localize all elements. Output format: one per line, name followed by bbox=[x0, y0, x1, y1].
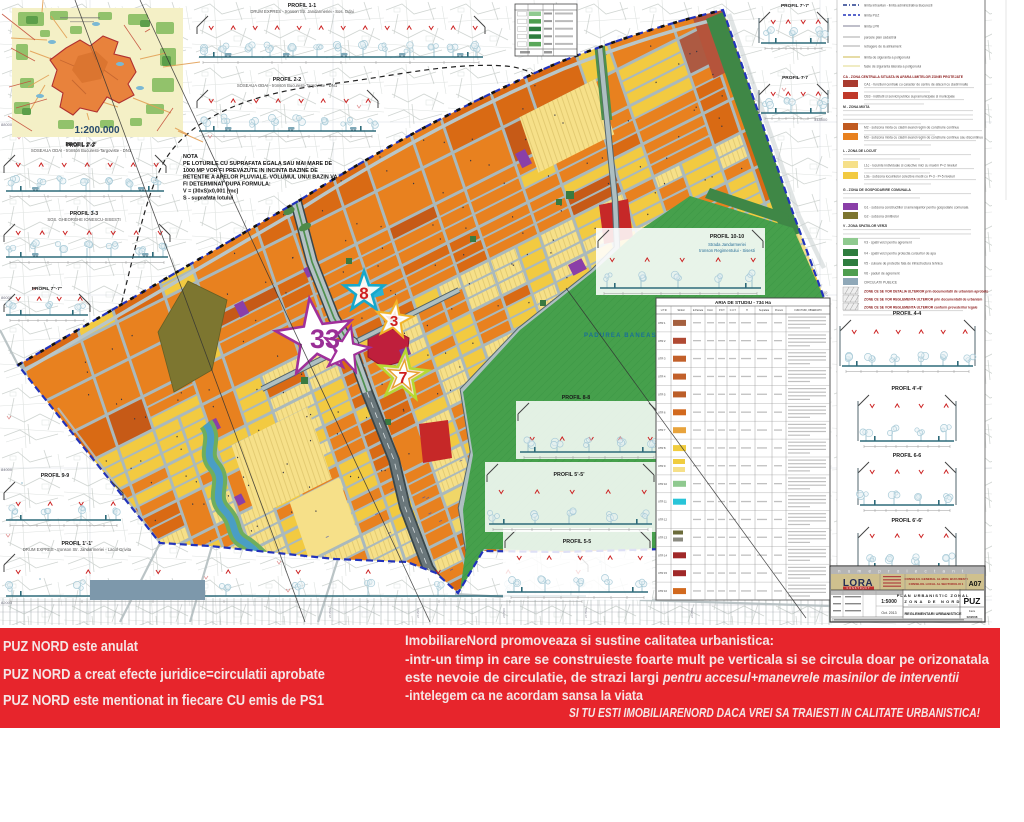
svg-text:PROFIL 7-7: PROFIL 7-7 bbox=[782, 75, 808, 81]
svg-text:PROFIL 2'-2': PROFIL 2'-2' bbox=[66, 143, 95, 149]
svg-text:UTR 4: UTR 4 bbox=[658, 375, 666, 379]
svg-text:limita de siguranta a poligonu: limita de siguranta a poligonului bbox=[864, 56, 910, 60]
svg-text:-intr-un timp in care se const: -intr-un timp in care se construieste fo… bbox=[405, 651, 989, 667]
svg-text:UTR 10: UTR 10 bbox=[658, 482, 667, 486]
svg-text:CIRCULATII PUBLICE: CIRCULATII PUBLICE bbox=[864, 281, 898, 285]
svg-text:M3 - subzona mixta cu cladiri: M3 - subzona mixta cu cladiri avand regi… bbox=[864, 136, 983, 140]
svg-text:PUZ: PUZ bbox=[964, 596, 981, 606]
svg-text:8: 8 bbox=[359, 284, 368, 303]
svg-text:S - suprafata lotului: S - suprafata lotului bbox=[183, 195, 234, 201]
svg-text:M - ZONA MIXTA: M - ZONA MIXTA bbox=[843, 105, 870, 109]
svg-text:fasie de siguranta laterala a: fasie de siguranta laterala a poligonulu… bbox=[864, 65, 921, 69]
svg-text:tronson Regimentului - Sisesti: tronson Regimentului - Sisesti bbox=[699, 248, 755, 253]
svg-text:UTR 7: UTR 7 bbox=[658, 428, 666, 432]
svg-text:PLAN URBANISTIC ZONAL: PLAN URBANISTIC ZONAL bbox=[897, 593, 970, 598]
svg-text:PROFIL 7'-7': PROFIL 7'-7' bbox=[781, 3, 809, 9]
svg-text:retragere de la aliniament: retragere de la aliniament bbox=[864, 45, 901, 49]
svg-text:V5 - culoare de protectie fata: V5 - culoare de protectie fata de infras… bbox=[864, 262, 943, 266]
svg-text:82000: 82000 bbox=[1, 600, 13, 605]
svg-text:PROFIL 9-9: PROFIL 9-9 bbox=[41, 473, 70, 479]
svg-text:G1 - subzona constructiilor si: G1 - subzona constructiilor si amenajari… bbox=[864, 206, 968, 210]
svg-text:PROFIL 8-8: PROFIL 8-8 bbox=[562, 395, 591, 401]
svg-text:Simbol: Simbol bbox=[677, 310, 685, 312]
svg-text:UTR 15: UTR 15 bbox=[658, 571, 667, 575]
svg-text:Procent: Procent bbox=[775, 309, 783, 312]
svg-text:33: 33 bbox=[310, 324, 340, 354]
svg-text:ZONA DE NORD: ZONA DE NORD bbox=[904, 599, 961, 604]
svg-text:NOTA: NOTA bbox=[183, 154, 198, 160]
svg-text:M2 - subzona mixta cu cladiri: M2 - subzona mixta cu cladiri avand regi… bbox=[864, 126, 959, 130]
svg-text:limita PUZ: limita PUZ bbox=[864, 14, 879, 18]
svg-text:V6 - paduri de agrement: V6 - paduri de agrement bbox=[864, 272, 900, 276]
svg-text:PUZ NORD este anulat: PUZ NORD este anulat bbox=[3, 639, 138, 655]
svg-text:V3 - spatii verzi pentru agrem: V3 - spatii verzi pentru agrement bbox=[864, 241, 912, 245]
svg-text:265500: 265500 bbox=[502, 608, 506, 618]
svg-text:UTR 5: UTR 5 bbox=[658, 392, 666, 396]
svg-text:269500: 269500 bbox=[690, 608, 694, 618]
svg-text:-intelegem ca ne acordam sansa: -intelegem ca ne acordam sansa la viata bbox=[405, 687, 643, 703]
svg-text:G - ZONA DE GOSPODARIRE COMUNA: G - ZONA DE GOSPODARIRE COMUNALA bbox=[843, 188, 911, 192]
svg-text:limita LPR: limita LPR bbox=[864, 25, 880, 29]
svg-text:UTR 11: UTR 11 bbox=[658, 500, 667, 504]
svg-text:PROFIL 5-5: PROFIL 5-5 bbox=[563, 539, 592, 545]
svg-text:7: 7 bbox=[399, 370, 408, 387]
svg-text:88000: 88000 bbox=[1, 122, 13, 127]
svg-text:PUZ NORD a creat efecte juridi: PUZ NORD a creat efecte juridice=circula… bbox=[3, 667, 325, 683]
svg-text:ZONE CE SE VOR REGLEMENTA ULTE: ZONE CE SE VOR REGLEMENTA ULTERIOR confo… bbox=[864, 306, 978, 310]
svg-text:Oct. 2013: Oct. 2013 bbox=[881, 611, 896, 615]
svg-text:PROFIL 5'-5': PROFIL 5'-5' bbox=[554, 472, 585, 478]
svg-text:E.Parcela: E.Parcela bbox=[693, 309, 704, 312]
svg-text:UTR 12: UTR 12 bbox=[658, 518, 667, 522]
svg-text:84000: 84000 bbox=[1, 467, 13, 472]
svg-text:PUZ NORD este mentionat in fie: PUZ NORD este mentionat in fiecare CU em… bbox=[3, 693, 324, 709]
svg-text:este nevoie de circulatie, de: este nevoie de circulatie, de strazi lar… bbox=[405, 669, 659, 685]
svg-text:pentru accesul+manevrele masi: pentru accesul+manevrele masinilor de in… bbox=[662, 669, 960, 685]
svg-text:PROFIL 7"-7": PROFIL 7"-7" bbox=[32, 286, 62, 292]
svg-text:ZONE CE SE VOR REGLEMENTA ULTE: ZONE CE SE VOR REGLEMENTA ULTERIOR prin … bbox=[864, 298, 982, 302]
svg-text:UTR 6: UTR 6 bbox=[658, 410, 666, 414]
svg-text:PADUREA BANEASA: PADUREA BANEASA bbox=[584, 333, 662, 339]
svg-text:CA1 - functiuni centrale cu ca: CA1 - functiuni centrale cu caracter de … bbox=[864, 83, 968, 87]
svg-text:V - ZONA SPATIILOR VERZI: V - ZONA SPATIILOR VERZI bbox=[843, 224, 887, 228]
svg-text:RETENTIE A APELOR PLUVIALE. VO: RETENTIE A APELOR PLUVIALE. VOLUMUL UNUI… bbox=[183, 175, 337, 181]
svg-text:Front: Front bbox=[707, 309, 713, 312]
svg-text:L1c - locuinte individuale si: L1c - locuinte individuale si colective … bbox=[864, 164, 957, 168]
svg-text:UTR 8: UTR 8 bbox=[658, 446, 666, 450]
svg-text:CA - ZONA CENTRALA SITUATA IN: CA - ZONA CENTRALA SITUATA IN AFARA LIMI… bbox=[843, 75, 964, 79]
svg-text:L3a - subzona locuintelor cole: L3a - subzona locuintelor colective medi… bbox=[864, 175, 955, 179]
svg-text:PROFIL 10-10: PROFIL 10-10 bbox=[710, 234, 744, 240]
svg-text:UTR 14: UTR 14 bbox=[658, 553, 667, 557]
svg-text:ImobiliareNord promoveaza si s: ImobiliareNord promoveaza si sustine cal… bbox=[405, 632, 774, 648]
svg-text:n u m e p r o i e c t a n t: n u m e p r o i e c t a n t bbox=[838, 569, 966, 574]
svg-text:ZONE CE SE VOR DETALIA ULTERIO: ZONE CE SE VOR DETALIA ULTERIOR prin doc… bbox=[864, 290, 988, 294]
svg-text:263500: 263500 bbox=[416, 608, 420, 618]
svg-text:limita intravilan - limita adm: limita intravilan - limita administrativ… bbox=[864, 4, 933, 8]
svg-text:SOSEAUA ODAI - tronson Bucures: SOSEAUA ODAI - tronson Bucuresti-Targovi… bbox=[237, 83, 338, 88]
svg-text:1:5000: 1:5000 bbox=[881, 599, 897, 605]
svg-text:UTR 13: UTR 13 bbox=[658, 535, 667, 539]
svg-text:SI TU ESTI IMOBILIARENORD DACA: SI TU ESTI IMOBILIARENORD DACA VREI SA T… bbox=[569, 705, 981, 720]
svg-text:parcele plan cadastral: parcele plan cadastral bbox=[864, 36, 897, 40]
svg-text:267500: 267500 bbox=[584, 608, 588, 618]
svg-text:PROFIL 4-4: PROFIL 4-4 bbox=[893, 311, 922, 317]
svg-text:ARIA DE STUDIU - 734 Ha: ARIA DE STUDIU - 734 Ha bbox=[715, 300, 771, 305]
svg-text:DRUM EXPRES - tronson Str. Jan: DRUM EXPRES - tronson Str. Jandarmeriei … bbox=[23, 547, 132, 552]
svg-text:A07: A07 bbox=[969, 581, 982, 588]
svg-text:L - ZONA DE LOCUIT: L - ZONA DE LOCUIT bbox=[843, 149, 878, 153]
svg-text:348500: 348500 bbox=[814, 117, 828, 122]
svg-text:P.O.T.: P.O.T. bbox=[719, 310, 725, 312]
svg-text:3: 3 bbox=[390, 313, 398, 330]
svg-text:G2 - subzona cimitirelor: G2 - subzona cimitirelor bbox=[864, 215, 900, 219]
svg-text:Suprafata: Suprafata bbox=[759, 309, 770, 312]
svg-text:PROFIL 6-6: PROFIL 6-6 bbox=[893, 453, 922, 459]
svg-text:UTR 1: UTR 1 bbox=[658, 321, 666, 325]
svg-text:UTR 3: UTR 3 bbox=[658, 357, 666, 361]
svg-text:Strada Jandarmeriei: Strada Jandarmeriei bbox=[708, 242, 746, 247]
svg-text:UTR 9: UTR 9 bbox=[658, 464, 666, 468]
svg-text:U.T.R.: U.T.R. bbox=[661, 310, 668, 312]
svg-text:CONSILIUL GENERAL AL MUN. BUCU: CONSILIUL GENERAL AL MUN. BUCURESTI bbox=[904, 577, 967, 581]
svg-text:V4 - spatii verzi pentru prote: V4 - spatii verzi pentru protectia cursu… bbox=[864, 252, 936, 256]
svg-text:REGLEMENTARI URBANISTICE: REGLEMENTARI URBANISTICE bbox=[904, 612, 962, 616]
svg-text:1000 MP VOR FI PREVAZUTE IN IN: 1000 MP VOR FI PREVAZUTE IN INCINTA BAZI… bbox=[183, 168, 318, 174]
svg-text:CB3 - institutii si servicii p: CB3 - institutii si servicii publice sup… bbox=[864, 95, 955, 99]
svg-text:C.U.T.: C.U.T. bbox=[730, 310, 737, 312]
svg-text:Faza: Faza bbox=[969, 609, 976, 613]
svg-text:CONSILIUL LOCAL AL SECTORULUI: CONSILIUL LOCAL AL SECTORULUI 1 bbox=[909, 582, 964, 586]
svg-text:PROFIL 4'-4': PROFIL 4'-4' bbox=[892, 386, 923, 392]
svg-text:UTR 16: UTR 16 bbox=[658, 589, 667, 593]
svg-text:PE LOTURILE CU SUPRAFATA EGALA: PE LOTURILE CU SUPRAFATA EGALA SAU MAI M… bbox=[183, 161, 333, 167]
svg-text:261500: 261500 bbox=[328, 608, 332, 618]
svg-text:1:200.000: 1:200.000 bbox=[74, 125, 119, 136]
svg-text:SOS. GHEORGHE IONESCU-SISESTI: SOS. GHEORGHE IONESCU-SISESTI bbox=[47, 217, 120, 222]
svg-text:PROFIL 6'-6': PROFIL 6'-6' bbox=[892, 518, 923, 524]
svg-text:DRUM EXPRES - tronson Str. Jan: DRUM EXPRES - tronson Str. Jandarmeriei … bbox=[250, 9, 353, 14]
svg-text:FUNCTIUNI, OBSERVATII: FUNCTIUNI, OBSERVATII bbox=[794, 309, 821, 312]
svg-text:UTR 2: UTR 2 bbox=[658, 339, 666, 343]
